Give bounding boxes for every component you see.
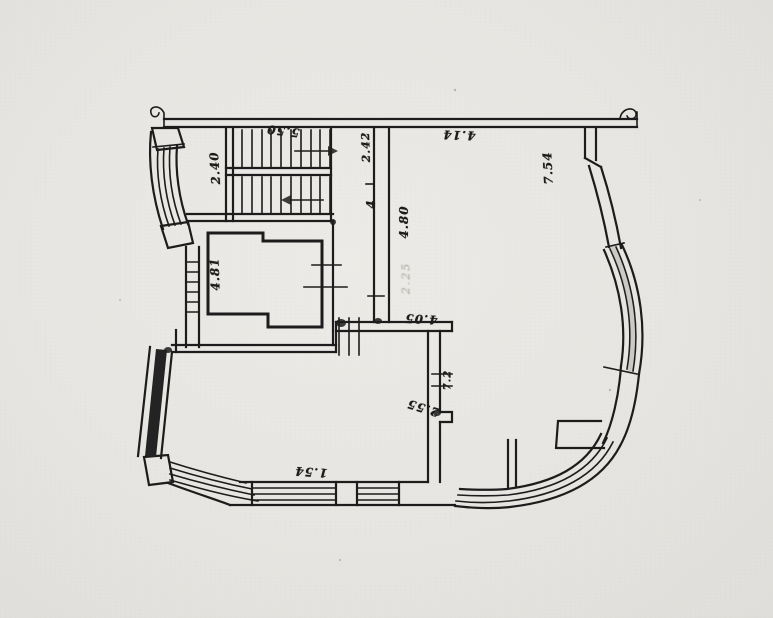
floorplan-linework [0, 0, 773, 618]
dimension-label-mid-wall: 4.05 [404, 311, 438, 327]
floorplan-scan: 5.50 2.40 4.14 7.54 2.42 4 4.80 2.25 4.0… [0, 0, 773, 618]
dimension-label-top-width: 4.14 [442, 127, 476, 142]
left-bay-window [150, 128, 193, 248]
dimension-label-corridor-mid: 4 [364, 199, 378, 208]
dimension-label-corridor-left: 2.42 [359, 131, 373, 162]
dimension-label-lower-jamb: 7.2 [443, 370, 454, 390]
bottom-wall [144, 455, 455, 505]
pencil-note: 2.25 [400, 262, 413, 295]
shaft-room [208, 222, 347, 345]
left-slant-wall [138, 330, 176, 458]
top-wall [151, 107, 637, 127]
dimension-label-corridor-right: 4.80 [397, 205, 411, 238]
dimension-label-right-height: 7.54 [540, 151, 556, 185]
dimension-label-bottom-width: 1.54 [294, 464, 328, 480]
dimension-label-stair-left: 2.40 [207, 151, 223, 185]
right-facade [455, 128, 642, 508]
hall-left-wall [186, 247, 199, 347]
dimension-label-room-left: 4.81 [207, 257, 222, 291]
